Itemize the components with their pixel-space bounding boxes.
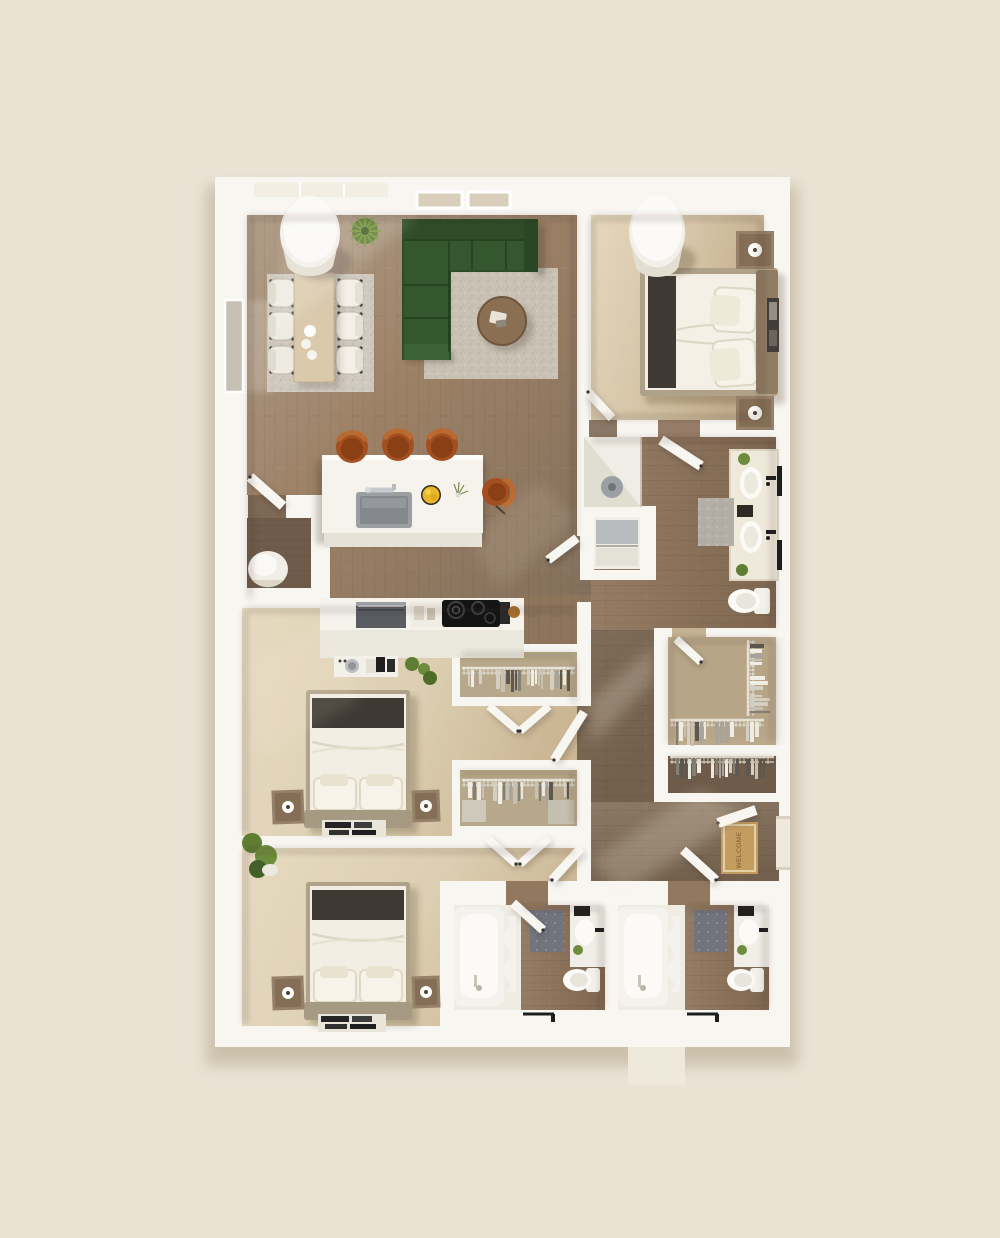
svg-text:WELCOME: WELCOME: [736, 831, 743, 868]
